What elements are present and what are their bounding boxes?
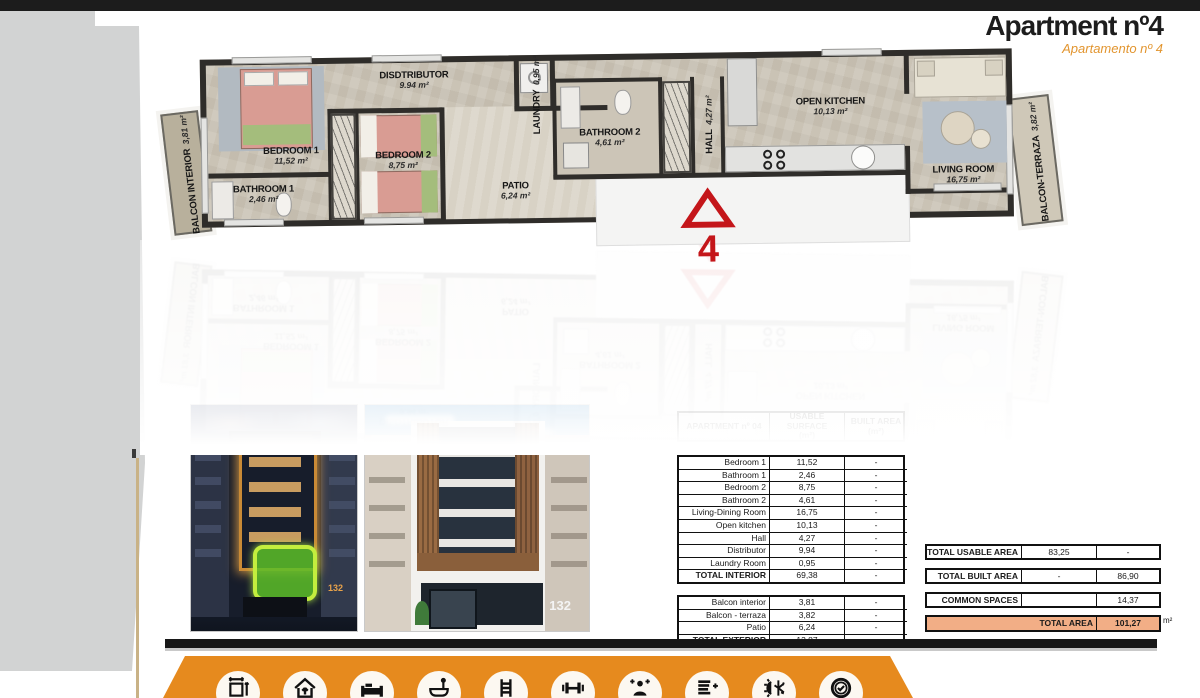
page-corner-wedge <box>0 11 150 671</box>
total-area-box: TOTAL AREA101,27 <box>925 615 1161 632</box>
total-area-unit: m² <box>1163 616 1172 625</box>
room-label: LAUNDRY <box>531 89 543 134</box>
row-label: Bedroom 2 <box>679 481 769 493</box>
street-number: 132 <box>549 598 571 613</box>
row-label: Bathroom 2 <box>679 494 769 506</box>
footer-divider-shadow <box>165 648 1157 651</box>
closet-bedroom1 <box>330 114 356 220</box>
kitchen-cabinet <box>727 58 758 126</box>
quality-check-badge-icon <box>819 671 863 698</box>
room-label: HALL <box>704 129 715 154</box>
room-label: BALCON-TERRAZA <box>1031 135 1052 222</box>
energy-rating-icon <box>685 671 729 698</box>
amenities-bar <box>150 656 925 698</box>
row-label: TOTAL INTERIOR <box>679 569 769 581</box>
kitchen-counter <box>725 144 905 173</box>
apartment-sheet: Apartment nº4 Apartamento nº 4 BALCON IN… <box>0 0 1200 698</box>
total-usable-area-box: TOTAL USABLE AREA83,25- <box>925 544 1161 560</box>
street-number: 132 <box>328 583 343 593</box>
row-label: Bathroom 1 <box>679 469 769 481</box>
stairwell-block <box>595 174 910 246</box>
closet-hall <box>662 81 691 173</box>
row-label: Balcon interior <box>679 597 769 609</box>
row-label: Balcon - terraza <box>679 609 769 621</box>
floorplan-position: BALCON INTERIOR 3,81 m² BALCON-TERRAZA 3… <box>162 44 1060 256</box>
row-label: Hall <box>679 532 769 544</box>
row-label: Bedroom 1 <box>679 457 769 469</box>
climate-sun-snowflake-icon <box>752 671 796 698</box>
bathtub-icon <box>417 671 461 698</box>
left-margin-line <box>136 458 139 698</box>
left-margin-tick <box>132 449 136 458</box>
row-label: Patio <box>679 621 769 633</box>
bed-icon <box>350 671 394 698</box>
row-label: Distributor <box>679 544 769 556</box>
room-label: BALCON INTERIOR <box>182 148 203 234</box>
floorplan: BALCON INTERIOR 3,81 m² BALCON-TERRAZA 3… <box>162 44 1060 256</box>
row-label: Living-Dining Room <box>679 506 769 518</box>
footer-divider-bar <box>165 639 1157 648</box>
unit-number: 4 <box>680 230 737 269</box>
house-icon <box>283 671 327 698</box>
apartment-highlight-box <box>253 545 317 601</box>
row-label: Laundry Room <box>679 557 769 569</box>
entrance-marker-icon <box>680 186 737 231</box>
surface-dimensions-icon <box>216 671 260 698</box>
balcony-terraza: BALCON-TERRAZA 3,82 m² <box>1007 94 1064 226</box>
total-built-area-box: TOTAL BUILT AREA-86,90 <box>925 568 1161 584</box>
gym-dumbbell-icon <box>551 671 595 698</box>
page-title: Apartment nº4 <box>700 12 1163 40</box>
spa-person-icon <box>618 671 662 698</box>
interior-rows: Bedroom 111,52- Bathroom 12,46- Bedroom … <box>677 455 905 584</box>
reflection-fade <box>140 240 1100 455</box>
common-spaces-box: COMMON SPACES14,37 <box>925 592 1161 608</box>
pool-ladder-icon <box>484 671 528 698</box>
row-label: Open kitchen <box>679 519 769 531</box>
